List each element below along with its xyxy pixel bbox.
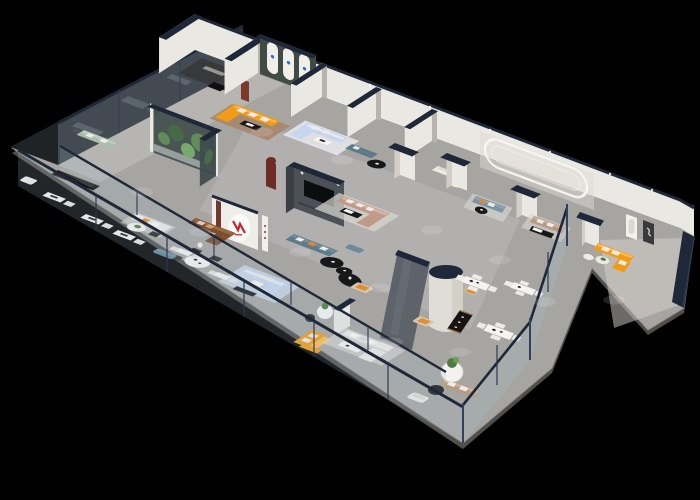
side-panel	[262, 215, 268, 252]
maroon-arch-niche	[266, 157, 276, 190]
showroom-isometric-render	[0, 0, 700, 500]
logo-text-mark	[235, 234, 242, 235]
render-canvas	[0, 0, 700, 500]
